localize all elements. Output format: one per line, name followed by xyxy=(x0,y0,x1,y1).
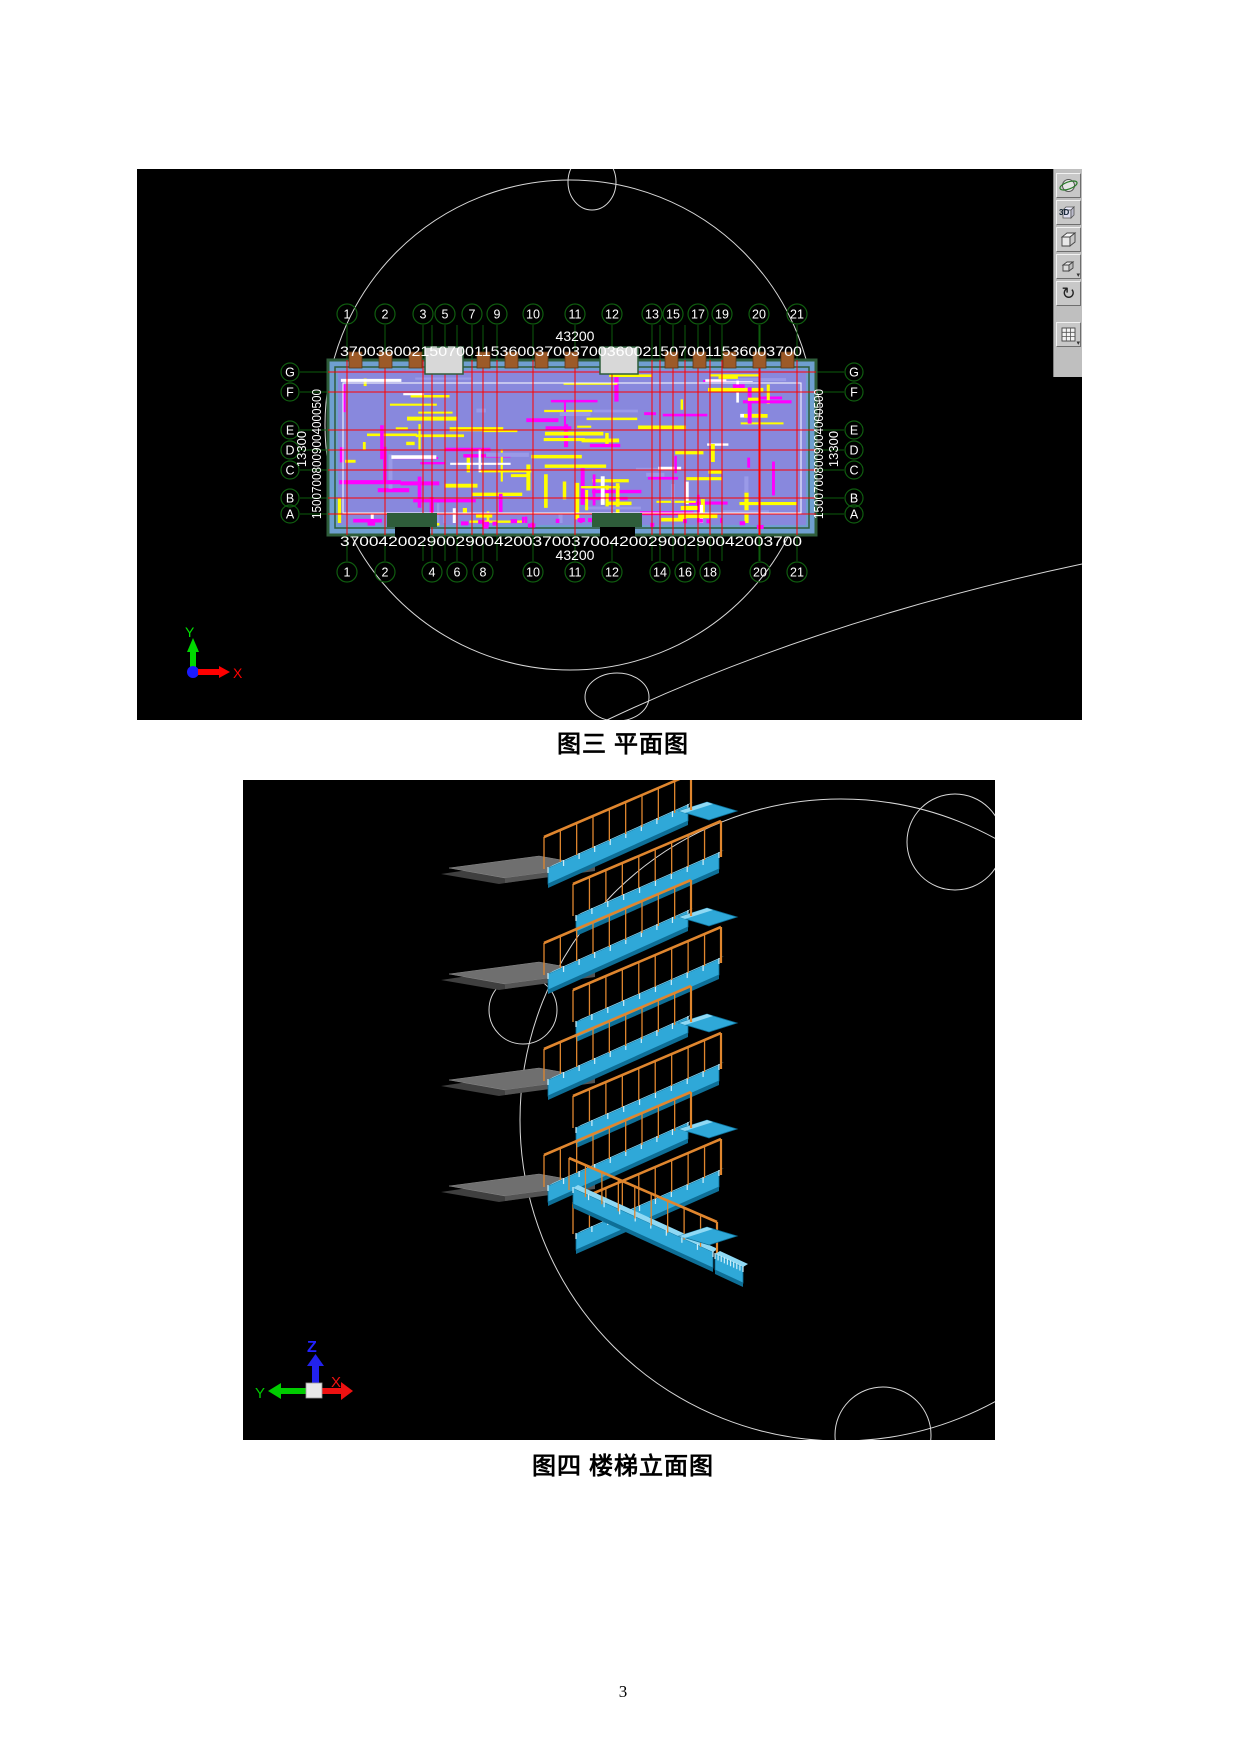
svg-text:3: 3 xyxy=(420,308,427,322)
grid-bubble: D xyxy=(845,441,863,459)
svg-text:14: 14 xyxy=(653,566,667,580)
grid-bubble: 17 xyxy=(688,304,708,324)
grid-bubble: C xyxy=(845,461,863,479)
ucs-icon-plan: Y X xyxy=(185,624,243,681)
plan-drawing: 1235791011121315171920211246810111214161… xyxy=(137,169,1082,720)
grid-bubble: 6 xyxy=(447,562,467,582)
grid-bubble: 14 xyxy=(650,562,670,582)
grid-bubble: 12 xyxy=(602,304,622,324)
cad-viewport-plan[interactable]: 1235791011121315171920211246810111214161… xyxy=(137,169,1082,720)
svg-text:C: C xyxy=(849,464,858,478)
svg-text:10: 10 xyxy=(526,308,540,322)
svg-text:12: 12 xyxy=(605,566,619,580)
grid-bubble: B xyxy=(281,489,299,507)
grid-bubble: 2 xyxy=(375,562,395,582)
grid-bubble: A xyxy=(281,505,299,523)
ucs-y-label: Y xyxy=(255,1385,265,1402)
svg-text:B: B xyxy=(286,492,294,506)
grid-bubble: G xyxy=(845,363,863,381)
grid-bubble: G xyxy=(281,363,299,381)
rotate-button[interactable]: ↻ xyxy=(1056,281,1081,306)
grid-bubble: 21 xyxy=(787,562,807,582)
grid-bubble: 1 xyxy=(337,562,357,582)
ucs-y-label: Y xyxy=(185,624,195,640)
dropdown-arrow-icon: ▾ xyxy=(1076,340,1080,347)
svg-text:9: 9 xyxy=(494,308,501,322)
svg-text:B: B xyxy=(850,492,858,506)
grid-bubble: 20 xyxy=(749,304,769,324)
svg-text:F: F xyxy=(850,386,858,400)
svg-text:4: 4 xyxy=(429,566,436,580)
page-number: 3 xyxy=(0,1682,1246,1702)
grid-bubble: 5 xyxy=(435,304,455,324)
svg-text:11: 11 xyxy=(569,308,582,322)
svg-text:11: 11 xyxy=(569,566,582,580)
svg-text:G: G xyxy=(849,366,859,380)
svg-text:6: 6 xyxy=(454,566,461,580)
box-dropdown-button[interactable]: ▾ xyxy=(1056,254,1081,279)
svg-text:1: 1 xyxy=(344,566,351,580)
svg-text:2: 2 xyxy=(382,308,389,322)
grid-bubble: B xyxy=(845,489,863,507)
ucs-z-label: Z xyxy=(307,1339,317,1356)
svg-text:15: 15 xyxy=(666,308,680,322)
3d-orbit-button[interactable]: 3D xyxy=(1056,200,1081,225)
svg-text:13: 13 xyxy=(645,308,659,322)
svg-text:F: F xyxy=(286,386,294,400)
grid-bubble: 18 xyxy=(700,562,720,582)
grid-bubble: 1 xyxy=(337,304,357,324)
grid-bubble: E xyxy=(845,421,863,439)
svg-text:8: 8 xyxy=(480,566,487,580)
grid-bubble: 16 xyxy=(675,562,695,582)
svg-text:12: 12 xyxy=(605,308,619,322)
grid-bubble: 21 xyxy=(787,304,807,324)
orbit-toolbar: 3D ▾ ↻ xyxy=(1053,169,1082,377)
svg-text:E: E xyxy=(850,424,858,438)
svg-text:1: 1 xyxy=(344,308,351,322)
grid-bubble: 12 xyxy=(602,562,622,582)
grid-bubble: 13 xyxy=(642,304,662,324)
svg-text:E: E xyxy=(286,424,294,438)
grid-bubble: 8 xyxy=(473,562,493,582)
svg-text:5: 5 xyxy=(442,308,449,322)
grid-bubble: 3 xyxy=(413,304,433,324)
svg-text:D: D xyxy=(849,444,858,458)
document-page: 1235791011121315171920211246810111214161… xyxy=(0,0,1246,1758)
left-dim-string: 15007008009004000500 xyxy=(310,389,324,519)
ucs-x-label: X xyxy=(233,665,243,681)
left-total-dim: 13300 xyxy=(294,431,309,467)
svg-text:20: 20 xyxy=(752,308,766,322)
grid-bubble: 4 xyxy=(422,562,442,582)
bottom-total-dim: 43200 xyxy=(556,547,595,563)
orbit-button[interactable] xyxy=(1056,173,1081,198)
svg-text:18: 18 xyxy=(703,566,717,580)
box-view-button[interactable] xyxy=(1056,227,1081,252)
svg-text:2: 2 xyxy=(382,566,389,580)
grid-bubble: 19 xyxy=(712,304,732,324)
ucs-icon-3d: Z Y X xyxy=(255,1339,353,1402)
rotate-icon: ↻ xyxy=(1061,284,1075,304)
svg-text:17: 17 xyxy=(691,308,705,322)
grid-bubble: 9 xyxy=(487,304,507,324)
svg-text:21: 21 xyxy=(790,566,804,580)
svg-text:20: 20 xyxy=(753,566,767,580)
box-icon xyxy=(1058,229,1079,250)
grid-bubble: 15 xyxy=(663,304,683,324)
svg-text:19: 19 xyxy=(715,308,729,322)
grid-bubble: A xyxy=(845,505,863,523)
grid-bubble: 10 xyxy=(523,304,543,324)
dropdown-arrow-icon: ▾ xyxy=(1076,272,1080,279)
grid-bubble: F xyxy=(845,383,863,401)
svg-text:21: 21 xyxy=(790,308,804,322)
cad-viewport-stairs[interactable]: Z Y X xyxy=(243,780,995,1440)
svg-text:10: 10 xyxy=(526,566,540,580)
grid-bubble: 7 xyxy=(462,304,482,324)
ucs-x-label: X xyxy=(331,1374,341,1391)
right-total-dim: 13300 xyxy=(826,431,841,467)
top-total-dim: 43200 xyxy=(556,328,595,344)
grid-bubble: 2 xyxy=(375,304,395,324)
grid-bubble: 11 xyxy=(565,304,585,324)
svg-text:G: G xyxy=(285,366,295,380)
grid-dropdown-button[interactable]: ▾ xyxy=(1056,322,1081,347)
top-dim-string: 3700360021507001153600370037003600215070… xyxy=(340,344,802,359)
construction-circles xyxy=(489,794,995,1440)
grid-bubble: F xyxy=(281,383,299,401)
figure3-caption: 图三 平面图 xyxy=(0,724,1246,759)
stair-drawing: Z Y X xyxy=(243,780,995,1440)
svg-text:16: 16 xyxy=(678,566,692,580)
grid-bubble: 20 xyxy=(750,562,770,582)
svg-text:A: A xyxy=(286,508,295,522)
svg-text:A: A xyxy=(850,508,859,522)
orbit-icon xyxy=(1058,175,1079,196)
grid-bubble: 11 xyxy=(565,562,585,582)
grid-bubble: 10 xyxy=(523,562,543,582)
3d-label: 3D xyxy=(1059,208,1069,217)
svg-text:7: 7 xyxy=(469,308,476,322)
figure4-caption: 图四 楼梯立面图 xyxy=(0,1446,1246,1481)
right-dim-string: 15007008009004000500 xyxy=(812,389,826,519)
